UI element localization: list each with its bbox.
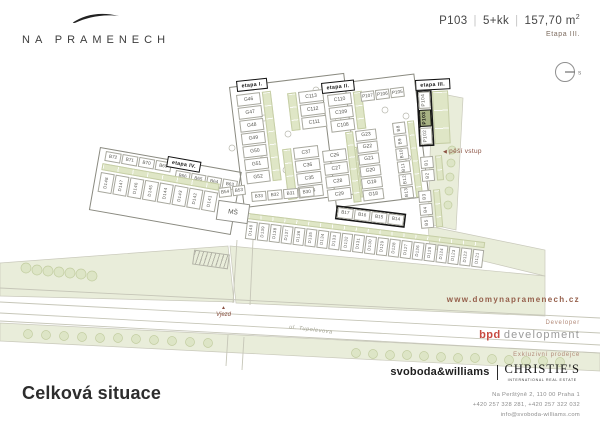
plot-D136[interactable]: D136	[292, 227, 305, 246]
plot-D125[interactable]: D125	[423, 243, 436, 262]
plot-D122[interactable]: D122	[459, 247, 472, 266]
plot-P106[interactable]: P106	[375, 88, 390, 100]
footer-info: www.domynapramenech.cz Developer bpd dev…	[390, 295, 580, 420]
pedestrian-entry-annotation: ◀pěší vstup	[443, 148, 482, 155]
broker-label: Exkluzivní prodejce	[513, 352, 580, 358]
website-link[interactable]: www.domynapramenech.cz	[447, 295, 580, 304]
pedestrian-entry-label: pěší vstup	[449, 148, 482, 155]
developer-name-rest: development	[504, 329, 580, 341]
plot-B1[interactable]: B1	[420, 156, 434, 169]
plot-D121[interactable]: D121	[471, 249, 484, 268]
kindergarten-label: MŠ	[228, 208, 239, 216]
kindergarten-block: MŠ	[216, 200, 250, 224]
plot-D139[interactable]: D139	[257, 222, 270, 241]
plot-B11[interactable]: B11	[397, 160, 411, 173]
broker-email: info@svoboda-williams.com	[473, 410, 580, 420]
plot-P105[interactable]: P105	[390, 87, 405, 99]
plot-D137[interactable]: D137	[281, 225, 294, 244]
plot-B54[interactable]: B54	[218, 186, 232, 198]
plot-B8[interactable]: B8	[392, 121, 406, 134]
plot-P102[interactable]: P102	[420, 127, 433, 145]
plot-D131[interactable]: D131	[352, 234, 365, 253]
arrow-left-icon: ◀	[443, 149, 447, 155]
plot-P103[interactable]: P103	[419, 109, 432, 127]
plot-B5[interactable]: B5	[420, 216, 434, 229]
plot-B14[interactable]: B14	[387, 213, 404, 226]
plot-B31[interactable]: B31	[283, 188, 299, 199]
plot-D124[interactable]: D124	[435, 244, 448, 263]
plot-B33[interactable]: B33	[251, 191, 267, 202]
plot-D138[interactable]: D138	[269, 224, 282, 243]
christies-logo: CHRISTIE'S INTERNATIONAL REAL ESTATE	[505, 362, 580, 382]
plot-B2[interactable]: B2	[421, 169, 435, 182]
garden-strip	[432, 90, 451, 144]
svoboda-williams-logo: svoboda&williams	[390, 366, 489, 378]
broker-logos: svoboda&williams CHRISTIE'S INTERNATIONA…	[390, 362, 580, 382]
plot-B10[interactable]: B10	[395, 147, 409, 160]
developer-label: Developer	[545, 320, 580, 326]
arrow-up-icon: ▲	[216, 306, 231, 311]
plot-D134[interactable]: D134	[316, 230, 329, 249]
plot-group-b12: B1B2	[420, 156, 435, 182]
plot-D127[interactable]: D127	[400, 240, 413, 259]
plot-D130[interactable]: D130	[364, 236, 377, 255]
plot-B32[interactable]: B32	[267, 189, 283, 200]
etapa3-label: etapa III.	[415, 78, 450, 91]
plot-D123[interactable]: D123	[447, 246, 460, 265]
developer-logo: bpd development	[479, 329, 580, 341]
plot-B17[interactable]: B17	[337, 207, 354, 220]
plot-D132[interactable]: D132	[340, 233, 353, 252]
plot-B12[interactable]: B12	[398, 173, 412, 186]
plot-B15[interactable]: B15	[370, 211, 387, 224]
developer-name-bold: bpd	[479, 329, 501, 341]
plot-P104[interactable]: P104	[418, 91, 431, 109]
plot-B4[interactable]: B4	[419, 203, 433, 216]
broker-phones: +420 257 328 281, +420 257 322 032	[473, 400, 580, 410]
plot-B16[interactable]: B16	[354, 209, 371, 222]
page-title: Celková situace	[22, 383, 161, 404]
plot-B53[interactable]: B53	[232, 185, 246, 197]
plot-group-etapa1_c_top: C113C112C111	[298, 89, 327, 130]
broker-address: Na Perštýně 2, 110 00 Praha 1	[473, 390, 580, 400]
entry-annotation: ▲ Vjezd	[216, 306, 231, 318]
plot-B13[interactable]: B13	[400, 186, 414, 199]
plot-D133[interactable]: D133	[328, 231, 341, 250]
broker-contact: Na Perštýně 2, 110 00 Praha 1 +420 257 3…	[473, 390, 580, 420]
brochure-page: NA PRAMENECH P103|5+kk|157,70 m2 Etapa I…	[0, 0, 600, 424]
entry-label: Vjezd	[216, 312, 231, 318]
logo-divider	[497, 365, 498, 380]
plot-group-etapa2_c_top: C110C109C108	[327, 92, 355, 133]
plot-D126[interactable]: D126	[412, 241, 425, 260]
plot-D135[interactable]: D135	[304, 228, 317, 247]
plot-D129[interactable]: D129	[376, 237, 389, 256]
plot-B3[interactable]: B3	[418, 190, 432, 203]
plot-P107[interactable]: P107	[360, 90, 375, 102]
plot-B30[interactable]: B30	[299, 187, 315, 198]
plot-D128[interactable]: D128	[388, 239, 401, 258]
plot-B9[interactable]: B9	[394, 134, 408, 147]
